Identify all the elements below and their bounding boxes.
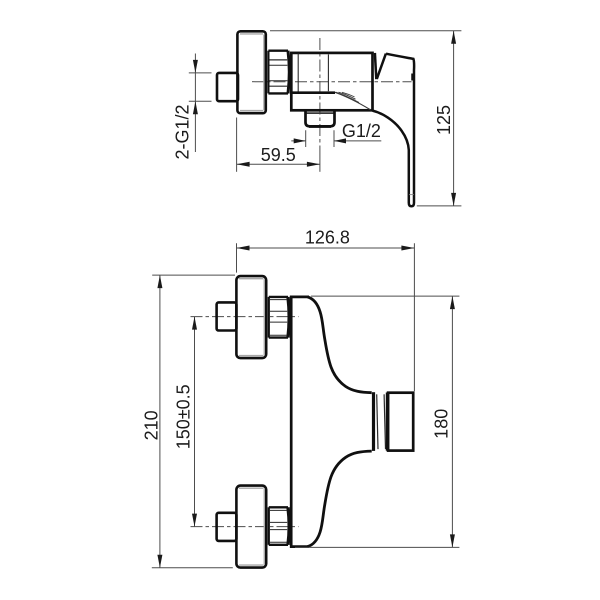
- svg-text:210: 210: [141, 410, 161, 440]
- svg-text:59.5: 59.5: [261, 145, 296, 165]
- svg-text:126.8: 126.8: [305, 227, 350, 247]
- svg-text:125: 125: [434, 105, 454, 135]
- svg-text:150±0.5: 150±0.5: [173, 384, 193, 449]
- svg-text:2-G1/2: 2-G1/2: [173, 104, 193, 159]
- svg-text:G1/2: G1/2: [342, 121, 381, 141]
- svg-text:180: 180: [432, 409, 452, 439]
